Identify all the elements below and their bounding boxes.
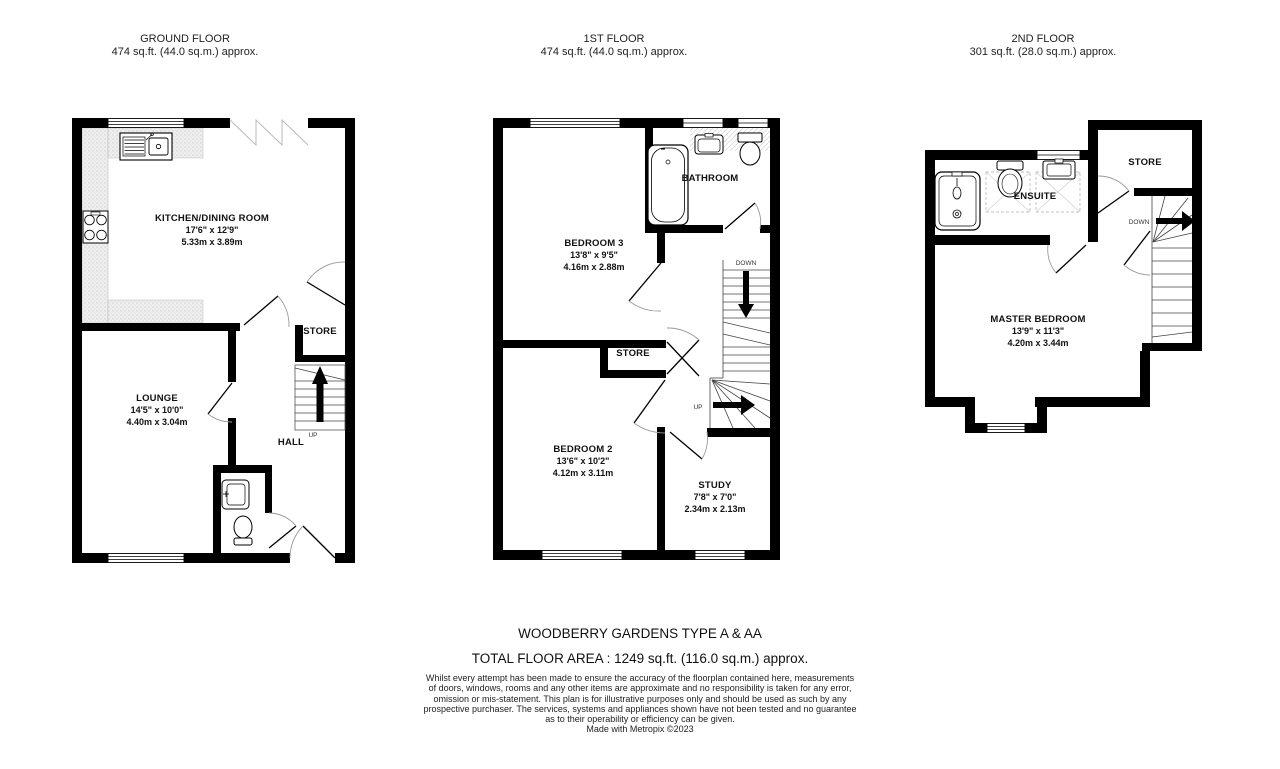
first-down-label: DOWN — [736, 260, 757, 267]
wc-basin — [222, 480, 249, 509]
second-floor-header: 2ND FLOOR 301 sq.ft. (28.0 sq.m.) approx… — [923, 33, 1163, 59]
lounge-window — [108, 554, 184, 563]
first-floor-header: 1ST FLOOR 474 sq.ft. (44.0 sq.m.) approx… — [494, 33, 734, 59]
first-floor-title: 1ST FLOOR — [494, 33, 734, 46]
kitchen-window — [108, 119, 184, 128]
bathroom-toilet — [738, 133, 762, 165]
ensuite-window — [1037, 151, 1080, 160]
bathroom-label: BATHROOM — [682, 173, 739, 184]
master-dormer-window — [987, 424, 1025, 433]
second-floor-title: 2ND FLOOR — [923, 33, 1163, 46]
second-floor-area: 301 sq.ft. (28.0 sq.m.) approx. — [923, 46, 1163, 59]
ground-floor-header: GROUND FLOOR 474 sq.ft. (44.0 sq.m.) app… — [65, 33, 305, 59]
bedroom2-dim-imperial: 13'6" x 10'2" — [557, 456, 610, 466]
disclaimer-line-3: omission or mis-statement. This plan is … — [340, 694, 940, 704]
second-floor-stairs — [1152, 196, 1195, 343]
bedroom3-window — [530, 119, 620, 128]
first-floor-doors — [629, 203, 761, 459]
bedroom3-dim-metric: 4.16m x 2.88m — [563, 262, 624, 272]
study-window — [695, 551, 745, 560]
hall-label: HALL — [278, 437, 304, 448]
lounge-dim-metric: 4.40m x 3.04m — [126, 417, 187, 427]
study-dim-metric: 2.34m x 2.13m — [684, 504, 745, 514]
disclaimer-line-1: Whilst every attempt has been made to en… — [340, 673, 940, 683]
disclaimer-line-4: prospective purchaser. The services, sys… — [340, 704, 940, 714]
bedroom3-label: BEDROOM 3 — [564, 238, 623, 249]
ensuite-sink — [1043, 159, 1075, 179]
up-arrow — [312, 366, 328, 422]
disclaimer-line-2: of doors, windows, rooms and any other i… — [340, 683, 940, 693]
total-floor-area: TOTAL FLOOR AREA : 1249 sq.ft. (116.0 sq… — [340, 651, 940, 666]
ground-floor-plan: KITCHEN/DINING ROOM 17'6" x 12'9" 5.33m … — [72, 118, 355, 563]
lounge-label: LOUNGE — [136, 393, 178, 404]
bedroom2-dim-metric: 4.12m x 3.11m — [553, 468, 614, 478]
first-up-label: UP — [693, 404, 702, 411]
bath — [648, 145, 688, 225]
kitchen-label: KITCHEN/DINING ROOM — [155, 213, 269, 224]
first-floor-stairs — [710, 260, 770, 428]
disclaimer: Whilst every attempt has been made to en… — [340, 673, 940, 735]
ground-floor-doors — [208, 262, 345, 558]
ensuite-label: ENSUITE — [1014, 191, 1057, 202]
bedroom2-label: BEDROOM 2 — [553, 444, 612, 455]
first-floor-area: 474 sq.ft. (44.0 sq.m.) approx. — [494, 46, 734, 59]
ground-floor-area: 474 sq.ft. (44.0 sq.m.) approx. — [65, 46, 305, 59]
kitchen-dim-imperial: 17'6" x 12'9" — [186, 225, 239, 235]
kitchen-sink — [120, 133, 172, 160]
up-arrow — [713, 395, 755, 415]
bathroom-sink — [695, 134, 723, 155]
second-floor-plan: STORE ENSUITE DOWN MASTER BEDROOM 13'9" … — [920, 115, 1210, 470]
first-floor-walls — [493, 118, 780, 560]
kitchen-dim-metric: 5.33m x 3.89m — [181, 237, 242, 247]
wc-toilet — [234, 516, 252, 545]
study-dim-imperial: 7'8" x 7'0" — [694, 492, 737, 502]
ground-floor-walls — [72, 118, 355, 563]
plan-title: WOODBERRY GARDENS TYPE A & AA — [340, 626, 940, 641]
floorplan-page: GROUND FLOOR 474 sq.ft. (44.0 sq.m.) app… — [0, 0, 1280, 769]
master-dim-imperial: 13'9" x 11'3" — [1012, 326, 1064, 336]
credit-line: Made with Metropix ©2023 — [340, 724, 940, 734]
first-store-label: STORE — [616, 348, 650, 359]
hob — [83, 211, 108, 243]
first-floor-plan: BEDROOM 3 13'8" x 9'5" 4.16m x 2.88m BAT… — [493, 118, 780, 560]
study-label: STUDY — [698, 480, 732, 491]
ground-up-label: UP — [308, 432, 317, 439]
shower — [935, 172, 980, 230]
footer: WOODBERRY GARDENS TYPE A & AA TOTAL FLOO… — [340, 626, 940, 735]
master-bedroom-label: MASTER BEDROOM — [990, 314, 1085, 325]
ground-store-label: STORE — [303, 326, 337, 337]
bedroom2-window — [542, 551, 622, 560]
ground-floor-stairs — [295, 365, 345, 430]
second-down-label: DOWN — [1129, 219, 1150, 226]
second-store-label: STORE — [1128, 157, 1162, 168]
bedroom3-dim-imperial: 13'8" x 9'5" — [570, 250, 618, 260]
master-dim-metric: 4.20m x 3.44m — [1007, 338, 1068, 348]
disclaimer-line-5: as to their operability or efficiency ca… — [340, 714, 940, 724]
lounge-dim-imperial: 14'5" x 10'0" — [131, 405, 184, 415]
patio-opening — [230, 120, 308, 145]
ground-floor-title: GROUND FLOOR — [65, 33, 305, 46]
